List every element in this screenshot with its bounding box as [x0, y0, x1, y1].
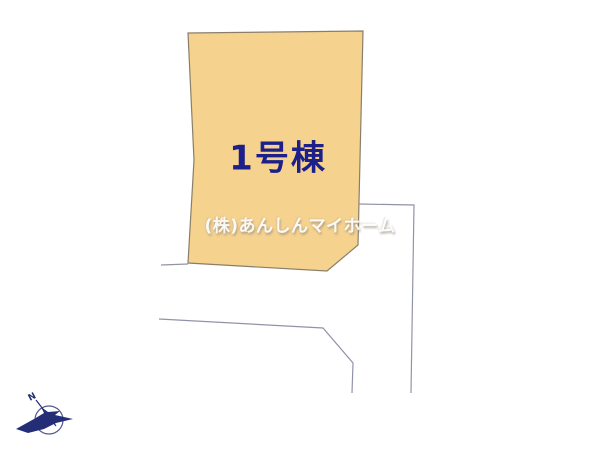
parcel-1-label: 1号棟 — [229, 131, 327, 180]
road-boundary-line-upper-left — [161, 264, 188, 265]
company-watermark: (株)あんしんマイホーム — [204, 212, 395, 237]
compass-bird-needle — [16, 407, 73, 433]
road-boundary-line-lower — [159, 319, 353, 393]
north-compass-icon: N — [16, 391, 73, 434]
site-plan-canvas: N 1号棟 (株)あんしんマイホーム — [0, 0, 600, 449]
north-label: N — [27, 391, 38, 403]
